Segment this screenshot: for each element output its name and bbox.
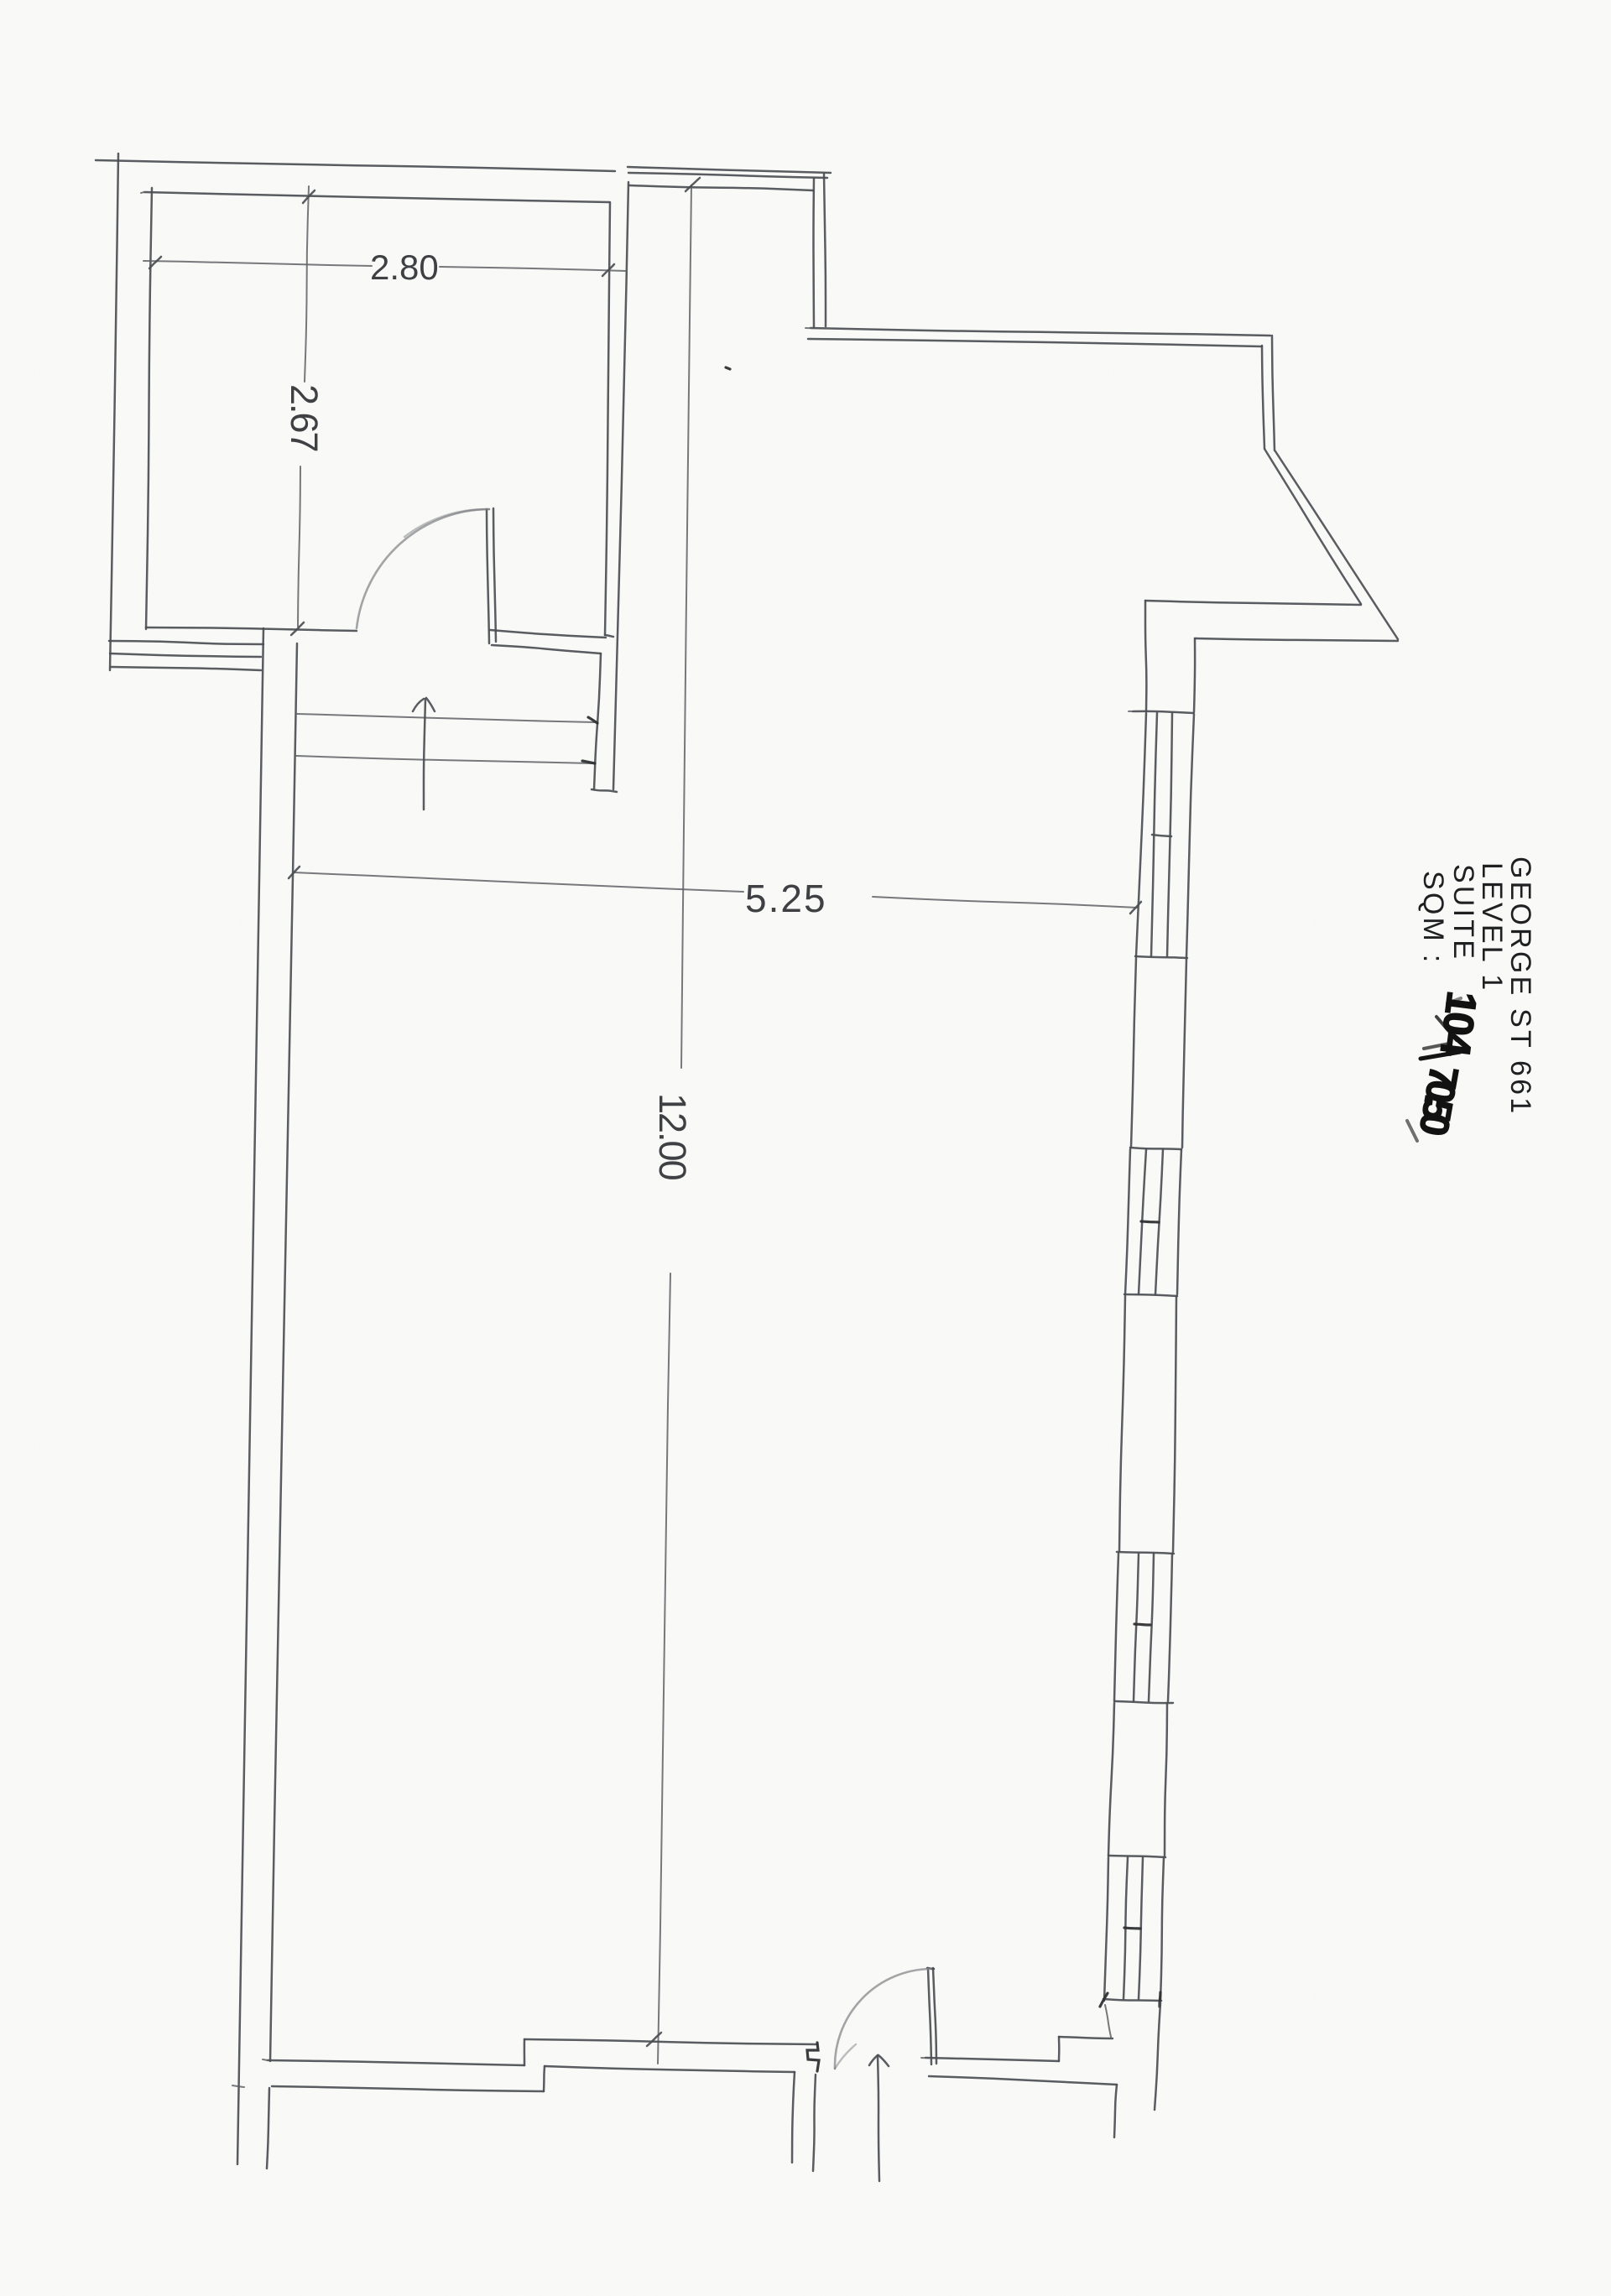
svg-text:5.25: 5.25	[745, 877, 827, 920]
svg-text:2.67: 2.67	[283, 384, 326, 451]
svg-text:GEORGE ST 661: GEORGE ST 661	[1504, 856, 1536, 1116]
svg-text:LEVEL 1: LEVEL 1	[1476, 862, 1508, 992]
svg-text:2.80: 2.80	[370, 247, 439, 287]
svg-text:12.00: 12.00	[651, 1093, 694, 1180]
svg-text:SUITE: SUITE	[1447, 864, 1479, 961]
svg-text:SQM :: SQM :	[1417, 871, 1449, 965]
